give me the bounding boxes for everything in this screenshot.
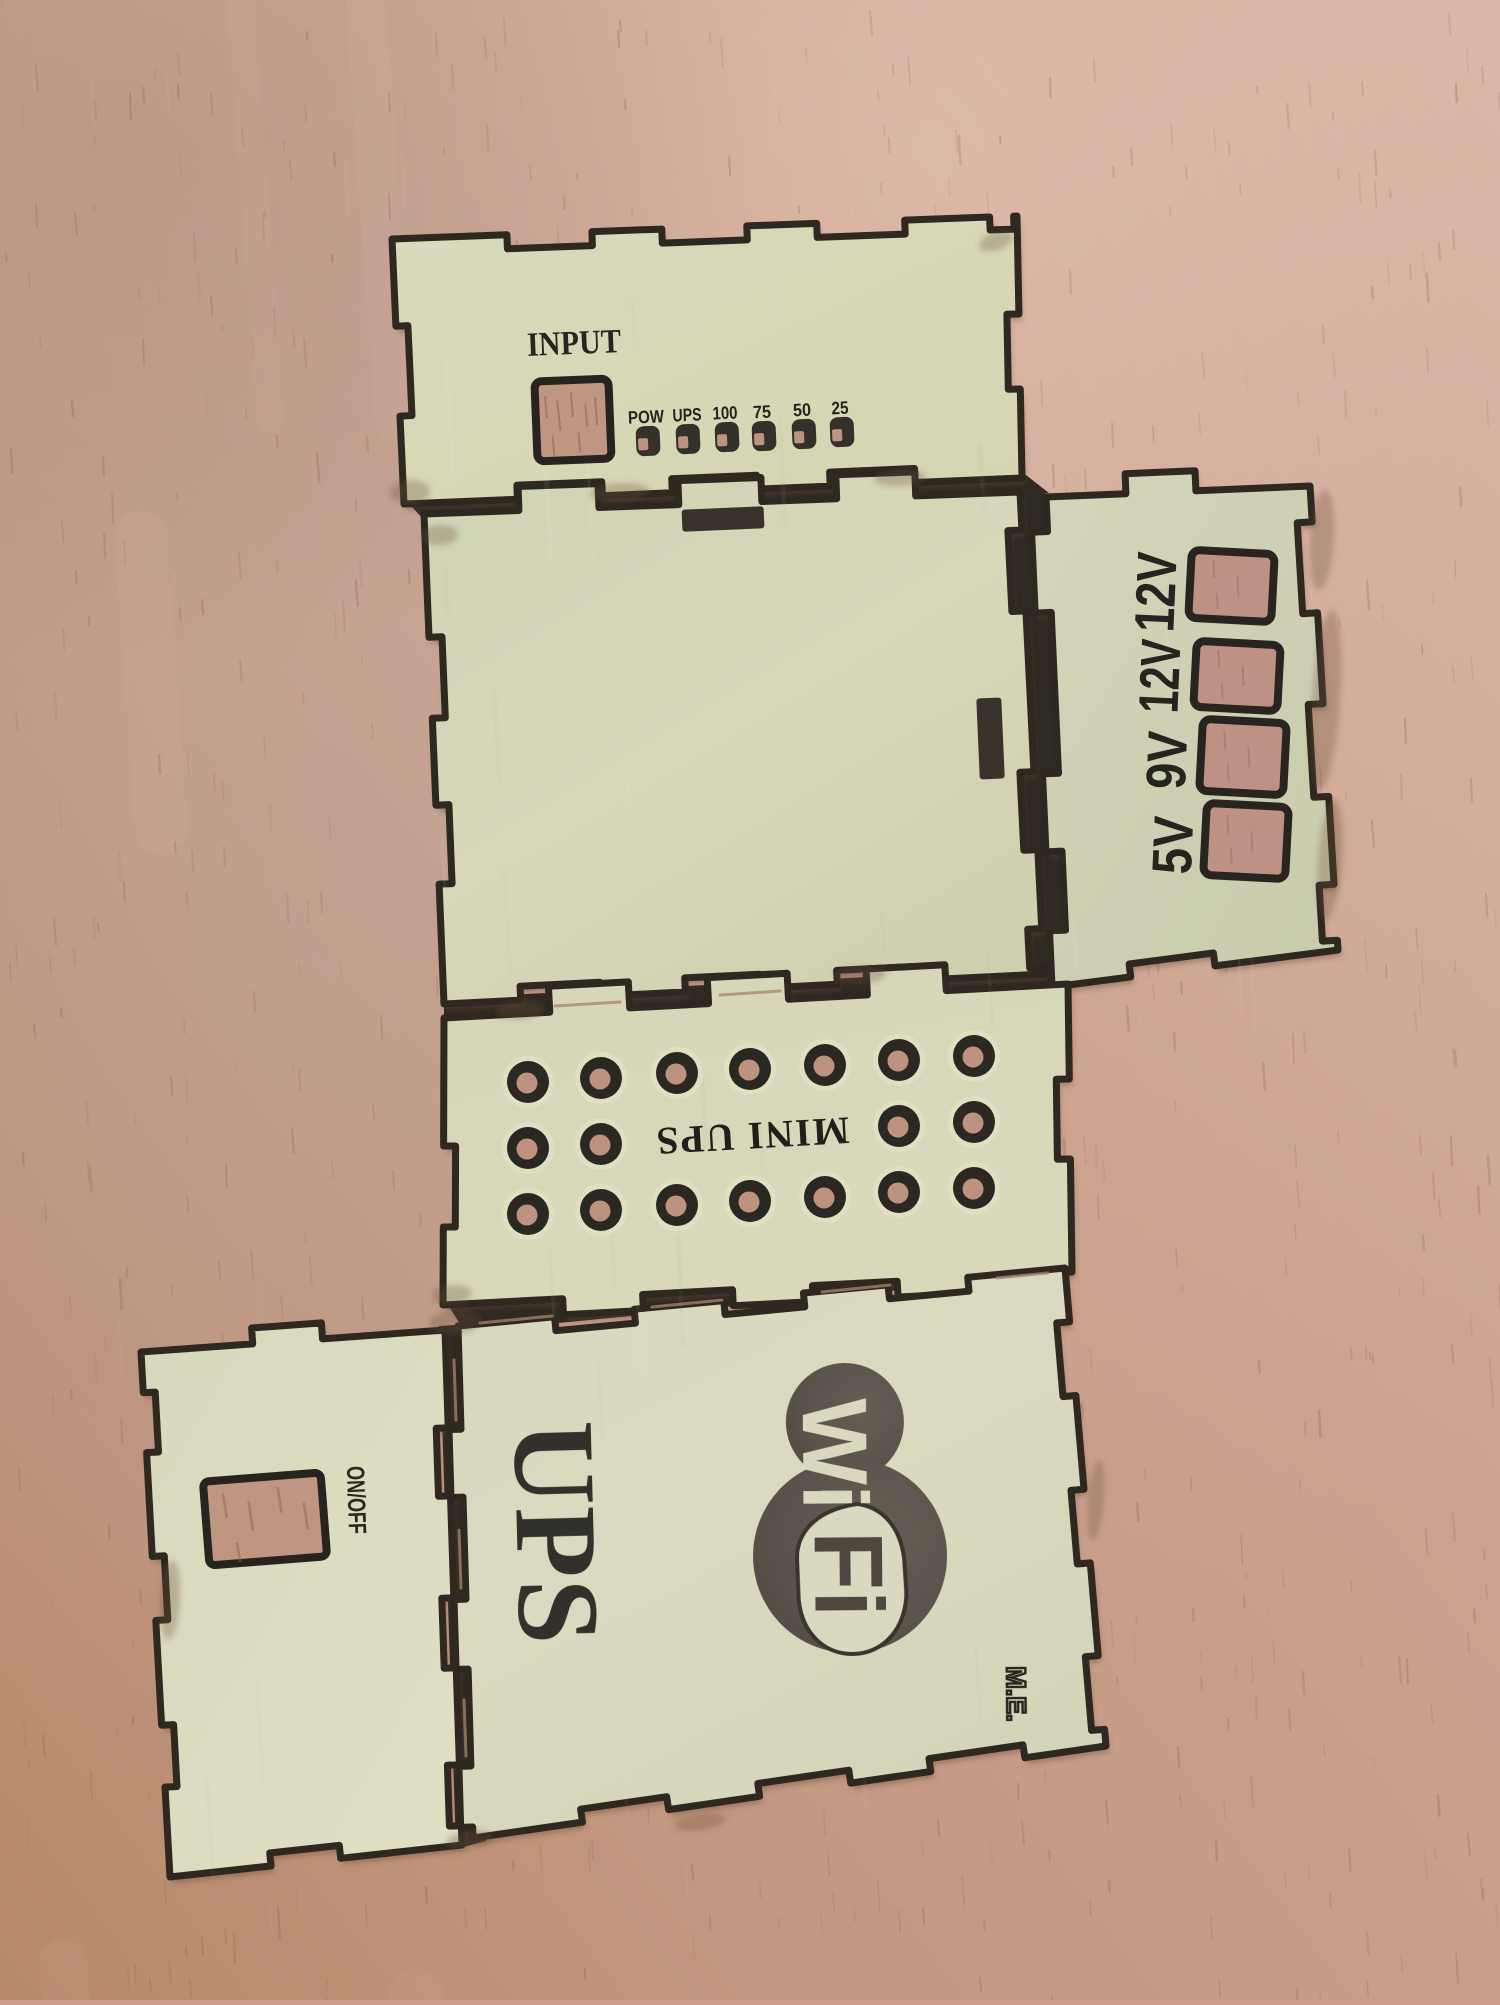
svg-text:12V: 12V — [1122, 551, 1188, 634]
svg-text:Wi: Wi — [783, 1398, 886, 1510]
svg-text:25: 25 — [831, 398, 849, 419]
svg-text:POW: POW — [628, 406, 665, 428]
svg-text:UPS: UPS — [672, 404, 702, 425]
svg-text:Fi: Fi — [794, 1530, 904, 1617]
svg-text:UPS: UPS — [488, 1419, 623, 1646]
svg-text:75: 75 — [753, 402, 772, 423]
svg-text:M.E.: M.E. — [1001, 1666, 1031, 1722]
svg-text:50: 50 — [793, 400, 812, 421]
svg-text:5V: 5V — [1140, 815, 1205, 876]
svg-text:12V: 12V — [1126, 638, 1192, 715]
svg-text:100: 100 — [712, 402, 738, 423]
svg-text:9V: 9V — [1134, 730, 1199, 791]
svg-text:ON/OFF: ON/OFF — [341, 1466, 371, 1535]
svg-text:INPUT: INPUT — [526, 323, 622, 364]
